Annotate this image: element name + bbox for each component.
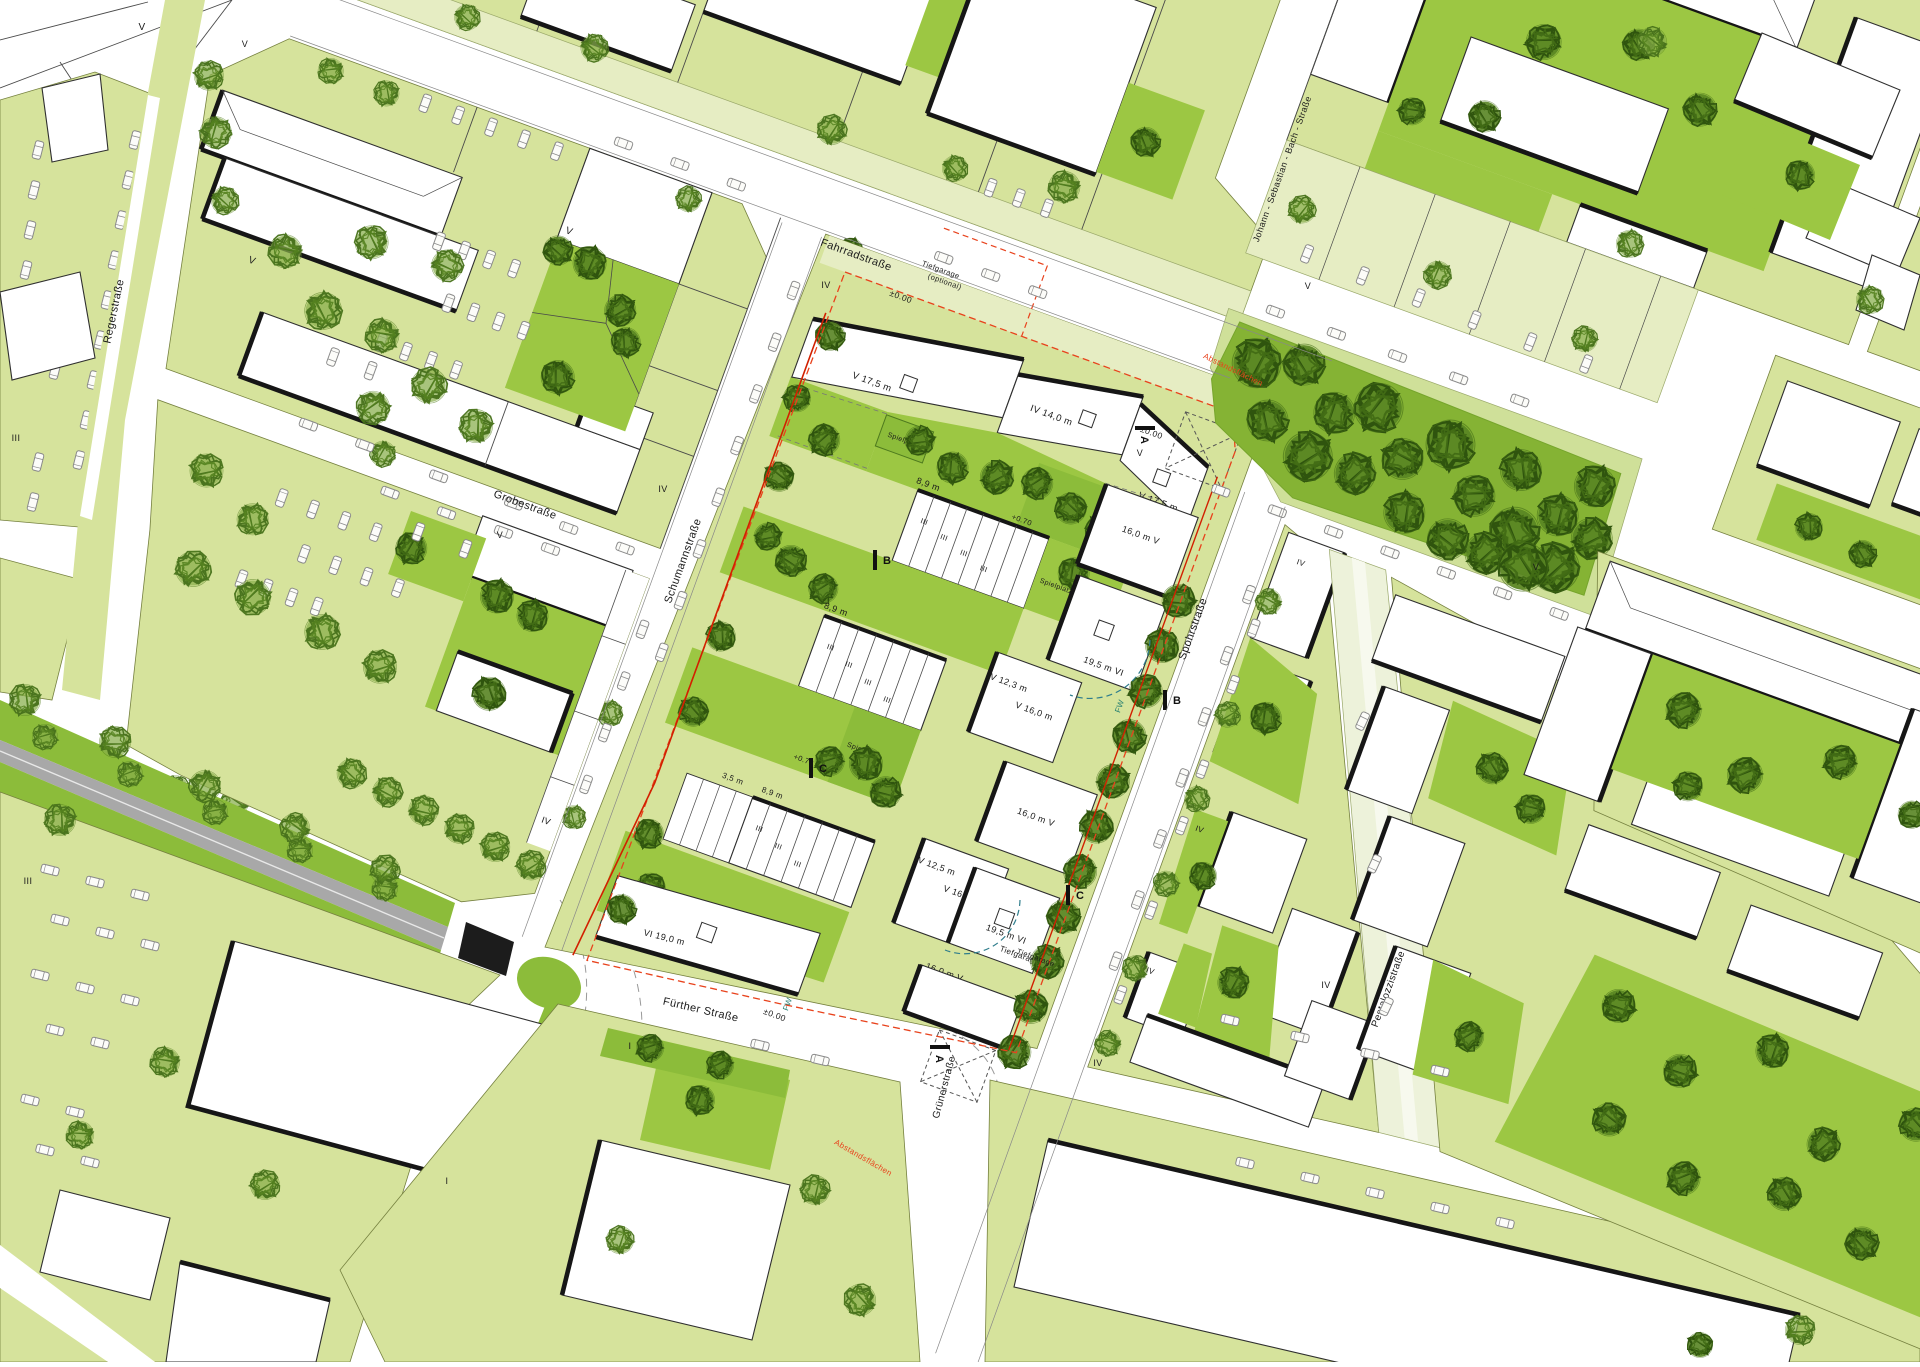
svg-text:C: C xyxy=(1076,890,1084,902)
svg-text:III: III xyxy=(24,876,33,886)
svg-text:A: A xyxy=(933,1055,945,1063)
svg-text:C: C xyxy=(819,763,827,775)
svg-text:IV: IV xyxy=(1321,980,1330,990)
svg-text:V: V xyxy=(1305,281,1311,291)
svg-text:I: I xyxy=(446,1176,449,1186)
svg-text:A: A xyxy=(1138,436,1150,444)
svg-text:B: B xyxy=(883,555,891,567)
svg-text:B: B xyxy=(1173,695,1181,707)
svg-text:III: III xyxy=(12,433,21,443)
svg-text:V: V xyxy=(497,530,503,540)
svg-text:V: V xyxy=(1533,562,1539,572)
svg-text:IV: IV xyxy=(821,280,830,290)
svg-text:IV: IV xyxy=(658,484,667,494)
svg-text:I: I xyxy=(629,1041,632,1051)
svg-text:V: V xyxy=(138,22,145,33)
svg-text:V: V xyxy=(1137,448,1143,458)
svg-text:V: V xyxy=(242,39,248,49)
svg-text:IV: IV xyxy=(1093,1058,1102,1068)
